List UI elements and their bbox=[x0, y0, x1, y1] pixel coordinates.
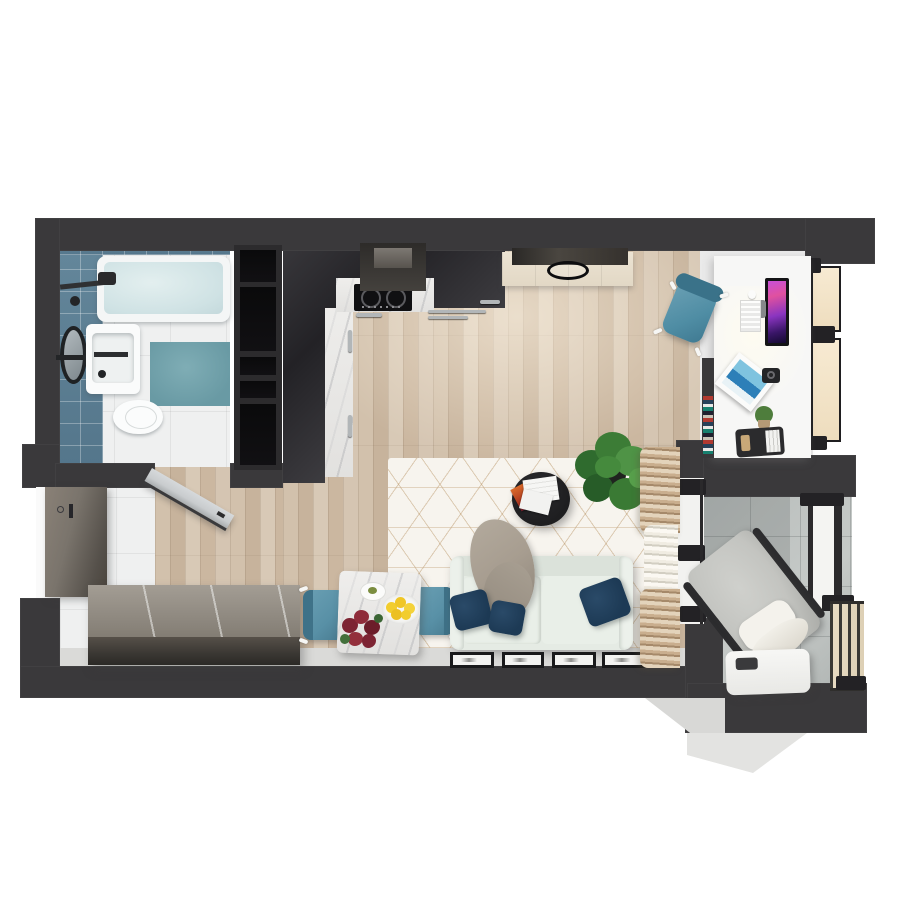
picture-frame-3 bbox=[552, 652, 596, 668]
shower-knob bbox=[70, 296, 80, 306]
toilet-seat-line bbox=[125, 406, 157, 429]
organizer-books bbox=[765, 430, 781, 453]
railing-bracket bbox=[836, 676, 866, 690]
entrance-door-handle bbox=[69, 504, 73, 518]
balcony-window-hinge-top bbox=[800, 493, 844, 506]
monitor-screen bbox=[768, 281, 786, 343]
curtain-top bbox=[640, 447, 680, 533]
flower-vase bbox=[340, 608, 386, 656]
washbasin bbox=[86, 324, 140, 394]
window-pane-upper bbox=[811, 266, 841, 332]
flower bbox=[362, 634, 376, 648]
flower-leaf bbox=[374, 614, 383, 623]
tall-shelving-unit bbox=[234, 245, 282, 470]
picture-frame-2 bbox=[502, 652, 544, 668]
cabinet-handle-top-3 bbox=[428, 316, 468, 319]
chair-back bbox=[303, 590, 313, 640]
lemon-bowl bbox=[382, 594, 420, 624]
desk-organizer bbox=[735, 426, 785, 457]
shower-head bbox=[98, 272, 116, 285]
ceiling-lamp-ring bbox=[547, 261, 589, 280]
cabinet-handle-left-2 bbox=[348, 415, 352, 437]
cabinet-handle-left-1 bbox=[348, 330, 352, 352]
hood-top-face bbox=[374, 248, 412, 268]
bathtub-water bbox=[104, 262, 223, 314]
sideboard bbox=[88, 585, 300, 665]
exterior-shadow-balcony bbox=[687, 733, 807, 773]
flower bbox=[348, 632, 363, 646]
lemon bbox=[401, 610, 411, 620]
shelf-niche bbox=[240, 250, 276, 282]
shelf-niche bbox=[240, 287, 276, 351]
camera-lens bbox=[767, 371, 775, 379]
camera bbox=[762, 368, 780, 383]
door-handle bbox=[216, 511, 225, 518]
wall-top bbox=[35, 218, 845, 251]
curtain-bottom bbox=[640, 589, 680, 668]
exterior-shadow bbox=[645, 698, 725, 734]
washbasin-faucet bbox=[94, 352, 128, 357]
wall-nook-bottom bbox=[703, 455, 856, 497]
shelf-niche bbox=[240, 381, 276, 398]
small-plate bbox=[360, 582, 386, 601]
washbasin-drain bbox=[98, 370, 106, 378]
shelf-niche bbox=[240, 404, 276, 465]
keyboard bbox=[740, 300, 761, 332]
hob-burner-right bbox=[386, 288, 406, 308]
balcony-window bbox=[808, 497, 842, 609]
kitchen-marble-counter-left bbox=[325, 287, 353, 477]
bath-mat bbox=[150, 342, 230, 406]
organizer-item bbox=[740, 435, 750, 452]
hob-burner-left bbox=[361, 288, 381, 308]
mouse bbox=[748, 290, 756, 299]
sideboard-front bbox=[88, 637, 300, 665]
plate-food bbox=[368, 587, 377, 594]
shelf-niche bbox=[240, 357, 276, 375]
navy-pillow-2 bbox=[487, 599, 526, 636]
curtain-middle bbox=[644, 525, 678, 597]
side-table-tray bbox=[735, 657, 757, 670]
toilet bbox=[113, 400, 163, 434]
picture-frame-1 bbox=[450, 652, 494, 668]
monitor bbox=[765, 278, 789, 346]
cabinet-handle-end bbox=[480, 300, 500, 304]
balcony-side-table bbox=[725, 649, 810, 696]
entrance-door bbox=[45, 487, 107, 597]
book-stack bbox=[703, 396, 713, 454]
wall-bathroom-bottom bbox=[55, 463, 155, 488]
cabinet-handle-top-2 bbox=[428, 310, 486, 313]
wall-bottom bbox=[20, 666, 723, 698]
floorplan-render bbox=[0, 0, 900, 900]
window-pane-lower bbox=[811, 338, 841, 442]
hob-controls bbox=[362, 306, 404, 308]
cabinet-handle-top-1 bbox=[356, 313, 382, 317]
sideboard-top bbox=[88, 585, 300, 637]
extractor-hood bbox=[360, 243, 426, 291]
bathtub bbox=[97, 256, 230, 322]
entrance-door-handle-dot bbox=[57, 506, 64, 513]
